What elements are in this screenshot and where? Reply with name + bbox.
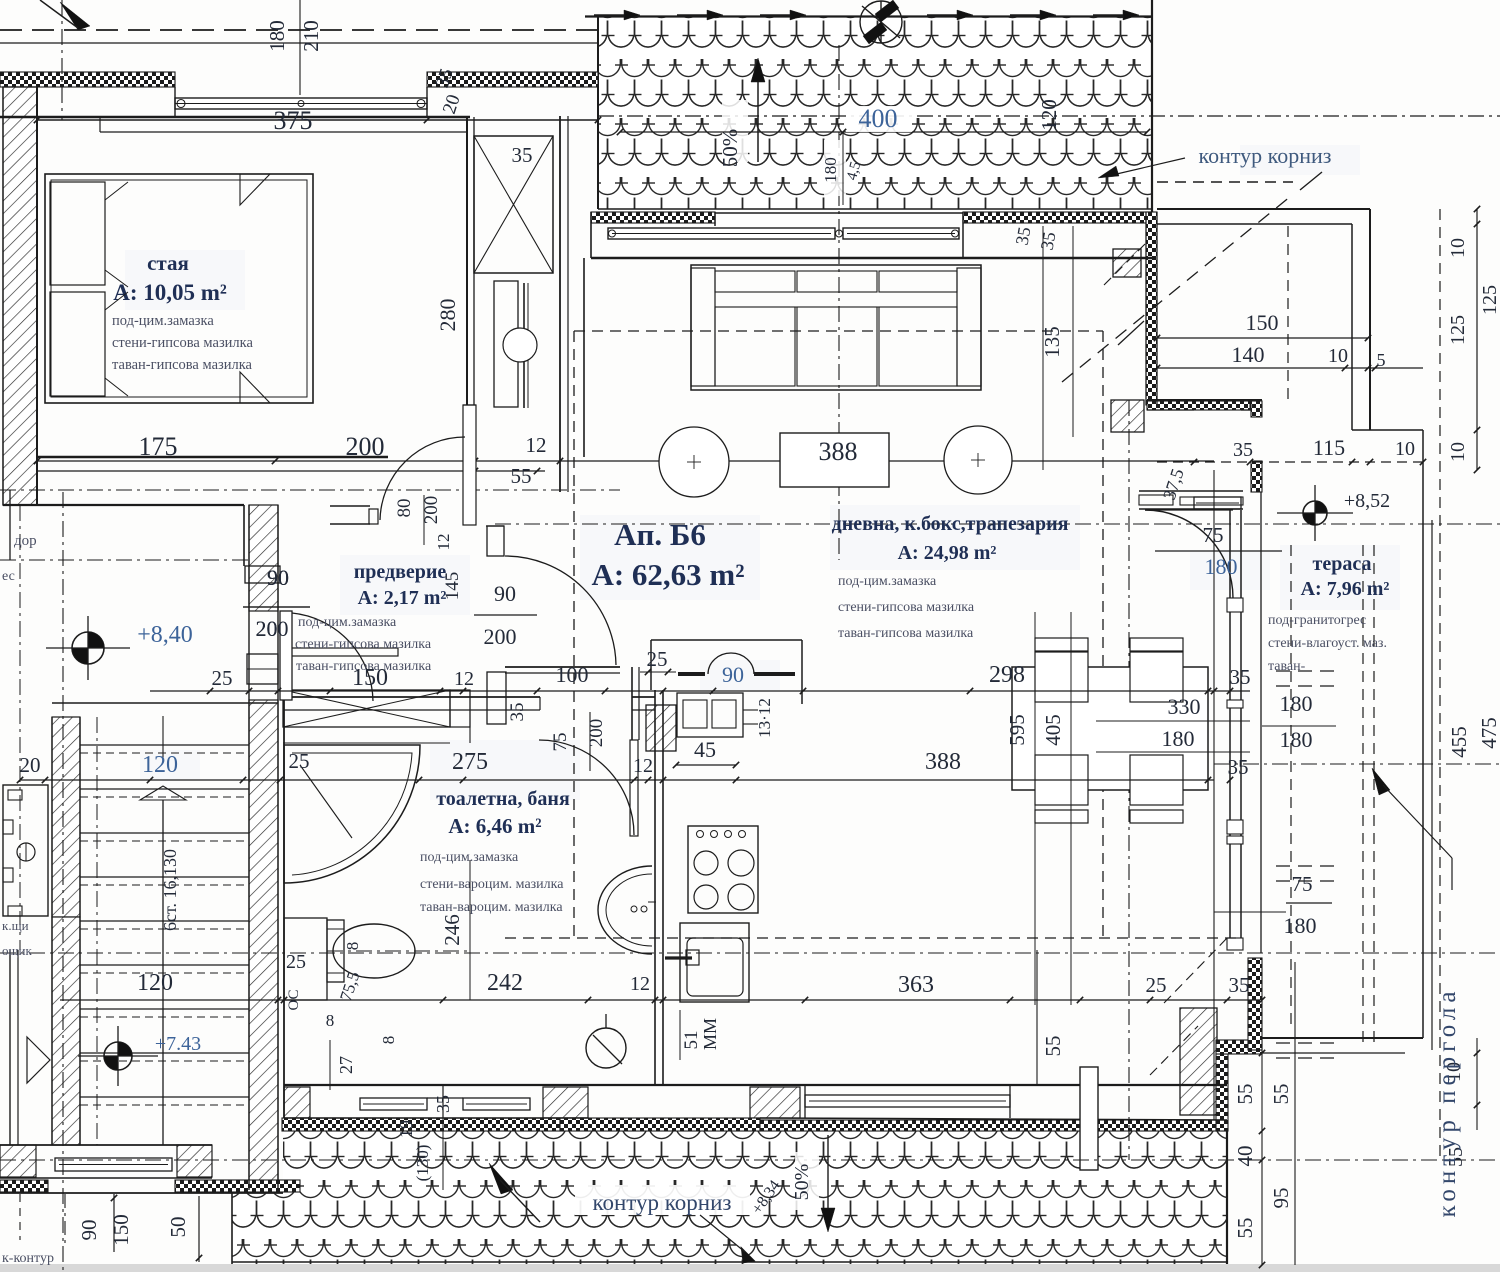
svg-text:50%: 50% bbox=[791, 1164, 813, 1201]
svg-text:55: 55 bbox=[1233, 1084, 1257, 1105]
svg-text:50%: 50% bbox=[718, 129, 742, 168]
svg-text:35: 35 bbox=[1228, 755, 1249, 779]
svg-text:25: 25 bbox=[212, 666, 233, 690]
svg-text:35: 35 bbox=[1230, 665, 1251, 689]
svg-text:150: 150 bbox=[352, 665, 388, 691]
svg-text:35: 35 bbox=[1037, 230, 1060, 251]
svg-text:10: 10 bbox=[1395, 438, 1415, 460]
svg-text:125: 125 bbox=[1479, 285, 1500, 315]
svg-text:5: 5 bbox=[1377, 350, 1386, 370]
svg-text:175: 175 bbox=[139, 432, 178, 461]
svg-text:50: 50 bbox=[166, 1217, 190, 1238]
svg-text:90: 90 bbox=[494, 581, 516, 606]
svg-text:120: 120 bbox=[1037, 99, 1061, 131]
svg-text:ес: ес bbox=[2, 569, 15, 584]
svg-text:25: 25 bbox=[1146, 973, 1167, 997]
svg-text:180: 180 bbox=[1162, 726, 1195, 751]
svg-text:75: 75 bbox=[1203, 523, 1224, 547]
svg-text:35: 35 bbox=[1233, 439, 1253, 461]
svg-text:+7.43: +7.43 bbox=[155, 1033, 201, 1055]
svg-text:55: 55 bbox=[1269, 1084, 1293, 1105]
svg-text:контур корниз: контур корниз bbox=[592, 1190, 731, 1215]
svg-text:А: 6,46 m²: А: 6,46 m² bbox=[448, 814, 541, 838]
svg-text:дор: дор bbox=[14, 533, 37, 549]
svg-text:388: 388 bbox=[925, 749, 961, 775]
svg-text:под-цим.замазка: под-цим.замазка bbox=[298, 615, 397, 630]
svg-text:75: 75 bbox=[550, 733, 571, 752]
svg-text:55: 55 bbox=[1233, 1218, 1257, 1239]
svg-text:25: 25 bbox=[647, 647, 668, 671]
svg-text:таван-: таван- bbox=[1268, 659, 1306, 674]
svg-text:19: 19 bbox=[396, 1120, 416, 1138]
svg-text:Ап. Б6: Ап. Б6 bbox=[614, 517, 706, 552]
svg-text:100: 100 bbox=[556, 662, 589, 687]
svg-text:280: 280 bbox=[435, 299, 460, 332]
svg-text:55: 55 bbox=[1041, 1036, 1065, 1057]
svg-text:51: 51 bbox=[681, 1031, 702, 1050]
svg-text:35: 35 bbox=[433, 1095, 453, 1113]
svg-text:к-контур: к-контур bbox=[2, 1251, 54, 1266]
svg-text:180: 180 bbox=[1280, 727, 1313, 752]
svg-text:595: 595 bbox=[1005, 714, 1029, 746]
svg-text:135: 135 bbox=[1040, 326, 1064, 358]
svg-text:дневна, к.бокс,трапезария: дневна, к.бокс,трапезария bbox=[832, 513, 1069, 535]
svg-text:35: 35 bbox=[512, 143, 533, 167]
svg-text:35: 35 bbox=[1012, 225, 1035, 246]
svg-text:+8,40: +8,40 bbox=[137, 622, 193, 648]
svg-text:200: 200 bbox=[256, 616, 289, 641]
svg-text:246: 246 bbox=[440, 914, 464, 946]
svg-text:45: 45 bbox=[694, 737, 716, 762]
svg-text:90: 90 bbox=[722, 662, 744, 687]
svg-text:10: 10 bbox=[1328, 345, 1348, 367]
svg-text:455: 455 bbox=[1447, 726, 1471, 758]
svg-text:27: 27 bbox=[336, 1056, 356, 1074]
svg-text:80: 80 bbox=[394, 499, 415, 518]
svg-text:стени-гипсова мазилка: стени-гипсова мазилка bbox=[838, 600, 975, 615]
svg-text:контур пергола: контур пергола bbox=[1434, 987, 1461, 1218]
svg-text:150: 150 bbox=[1246, 310, 1279, 335]
svg-text:А: 10,05 m²: А: 10,05 m² bbox=[113, 280, 227, 305]
svg-text:12: 12 bbox=[630, 973, 650, 995]
svg-text:под-цим.замазка: под-цим.замазка bbox=[838, 574, 937, 589]
svg-text:405: 405 bbox=[1041, 714, 1065, 746]
svg-text:200: 200 bbox=[484, 624, 517, 649]
svg-text:13·12: 13·12 bbox=[755, 698, 774, 738]
svg-text:35: 35 bbox=[507, 703, 528, 722]
svg-text:120: 120 bbox=[137, 970, 173, 996]
svg-text:+8,52: +8,52 bbox=[1344, 490, 1390, 512]
svg-text:ММ: ММ bbox=[700, 1018, 720, 1050]
svg-text:таван-вароцим. мазилка: таван-вароцим. мазилка bbox=[420, 900, 563, 915]
svg-text:180: 180 bbox=[1205, 554, 1238, 579]
svg-text:(130): (130) bbox=[413, 1145, 432, 1182]
svg-text:40: 40 bbox=[1233, 1146, 1257, 1167]
svg-text:к.щи: к.щи bbox=[2, 918, 29, 933]
svg-text:А: 7,96 m²: А: 7,96 m² bbox=[1301, 578, 1390, 600]
svg-text:тераса: тераса bbox=[1313, 553, 1372, 575]
svg-text:275: 275 bbox=[452, 749, 488, 775]
svg-text:6ст. 16,130: 6ст. 16,130 bbox=[160, 849, 180, 931]
svg-text:400: 400 bbox=[859, 104, 898, 133]
svg-text:375: 375 bbox=[274, 106, 313, 135]
svg-text:25: 25 bbox=[286, 951, 306, 973]
svg-text:388: 388 bbox=[819, 437, 858, 466]
svg-text:180: 180 bbox=[1280, 691, 1313, 716]
svg-text:8: 8 bbox=[343, 942, 362, 951]
svg-text:8: 8 bbox=[326, 1011, 335, 1030]
svg-text:10: 10 bbox=[1447, 238, 1469, 258]
svg-text:стени-гипсова мазилка: стени-гипсова мазилка bbox=[112, 335, 253, 351]
svg-text:20: 20 bbox=[20, 753, 41, 777]
svg-text:12: 12 bbox=[454, 668, 474, 690]
svg-text:А: 62,63 m²: А: 62,63 m² bbox=[591, 557, 744, 592]
svg-text:298: 298 bbox=[989, 662, 1025, 688]
svg-text:180: 180 bbox=[265, 20, 289, 52]
svg-text:75: 75 bbox=[1292, 872, 1313, 896]
svg-text:125: 125 bbox=[1447, 315, 1469, 345]
svg-text:ОС: ОС bbox=[286, 989, 302, 1010]
svg-text:стени-влагоуст. маз.: стени-влагоуст. маз. bbox=[1268, 636, 1387, 651]
svg-text:таван-гипсова мазилка: таван-гипсова мазилка bbox=[838, 626, 974, 641]
svg-text:180: 180 bbox=[1284, 913, 1317, 938]
svg-text:25: 25 bbox=[289, 749, 310, 773]
svg-text:тоалетна, баня: тоалетна, баня bbox=[436, 788, 570, 810]
svg-text:35: 35 bbox=[1229, 973, 1250, 997]
svg-text:95: 95 bbox=[1269, 1188, 1293, 1209]
svg-text:А: 24,98 m²: А: 24,98 m² bbox=[898, 542, 997, 564]
svg-text:242: 242 bbox=[487, 970, 523, 996]
svg-text:стени-вароцим. мазилка: стени-вароцим. мазилка bbox=[420, 877, 564, 892]
svg-text:363: 363 bbox=[898, 972, 934, 998]
svg-text:180: 180 bbox=[821, 157, 840, 183]
svg-text:90: 90 bbox=[267, 565, 289, 590]
svg-text:8: 8 bbox=[379, 1036, 398, 1045]
svg-text:12: 12 bbox=[633, 755, 653, 777]
svg-text:под-гранитогрес: под-гранитогрес bbox=[1268, 613, 1366, 628]
svg-text:150: 150 bbox=[109, 1214, 133, 1246]
svg-text:115: 115 bbox=[1313, 435, 1345, 460]
svg-text:200: 200 bbox=[346, 432, 385, 461]
svg-text:140: 140 bbox=[1232, 342, 1265, 367]
svg-text:ощик: ощик bbox=[2, 943, 32, 958]
svg-text:210: 210 bbox=[299, 20, 323, 52]
svg-text:55: 55 bbox=[511, 464, 532, 488]
svg-text:таван-гипсова мазилка: таван-гипсова мазилка bbox=[112, 357, 253, 373]
svg-text:стени-гипсова мазилка: стени-гипсова мазилка bbox=[295, 637, 432, 652]
svg-text:А: 2,17 m²: А: 2,17 m² bbox=[358, 587, 447, 609]
svg-text:200: 200 bbox=[586, 719, 607, 748]
svg-text:12: 12 bbox=[434, 534, 453, 551]
svg-text:предверие: предверие bbox=[354, 561, 447, 583]
svg-text:контур корниз: контур корниз bbox=[1199, 143, 1332, 168]
svg-text:330: 330 bbox=[1168, 694, 1201, 719]
svg-text:стая: стая bbox=[147, 251, 189, 275]
svg-text:под-цим.замазка: под-цим.замазка bbox=[112, 313, 214, 329]
svg-text:120: 120 bbox=[142, 752, 178, 778]
svg-text:10: 10 bbox=[1447, 442, 1469, 462]
svg-text:475: 475 bbox=[1477, 717, 1500, 749]
svg-text:12: 12 bbox=[526, 433, 547, 457]
svg-text:90: 90 bbox=[77, 1220, 101, 1241]
